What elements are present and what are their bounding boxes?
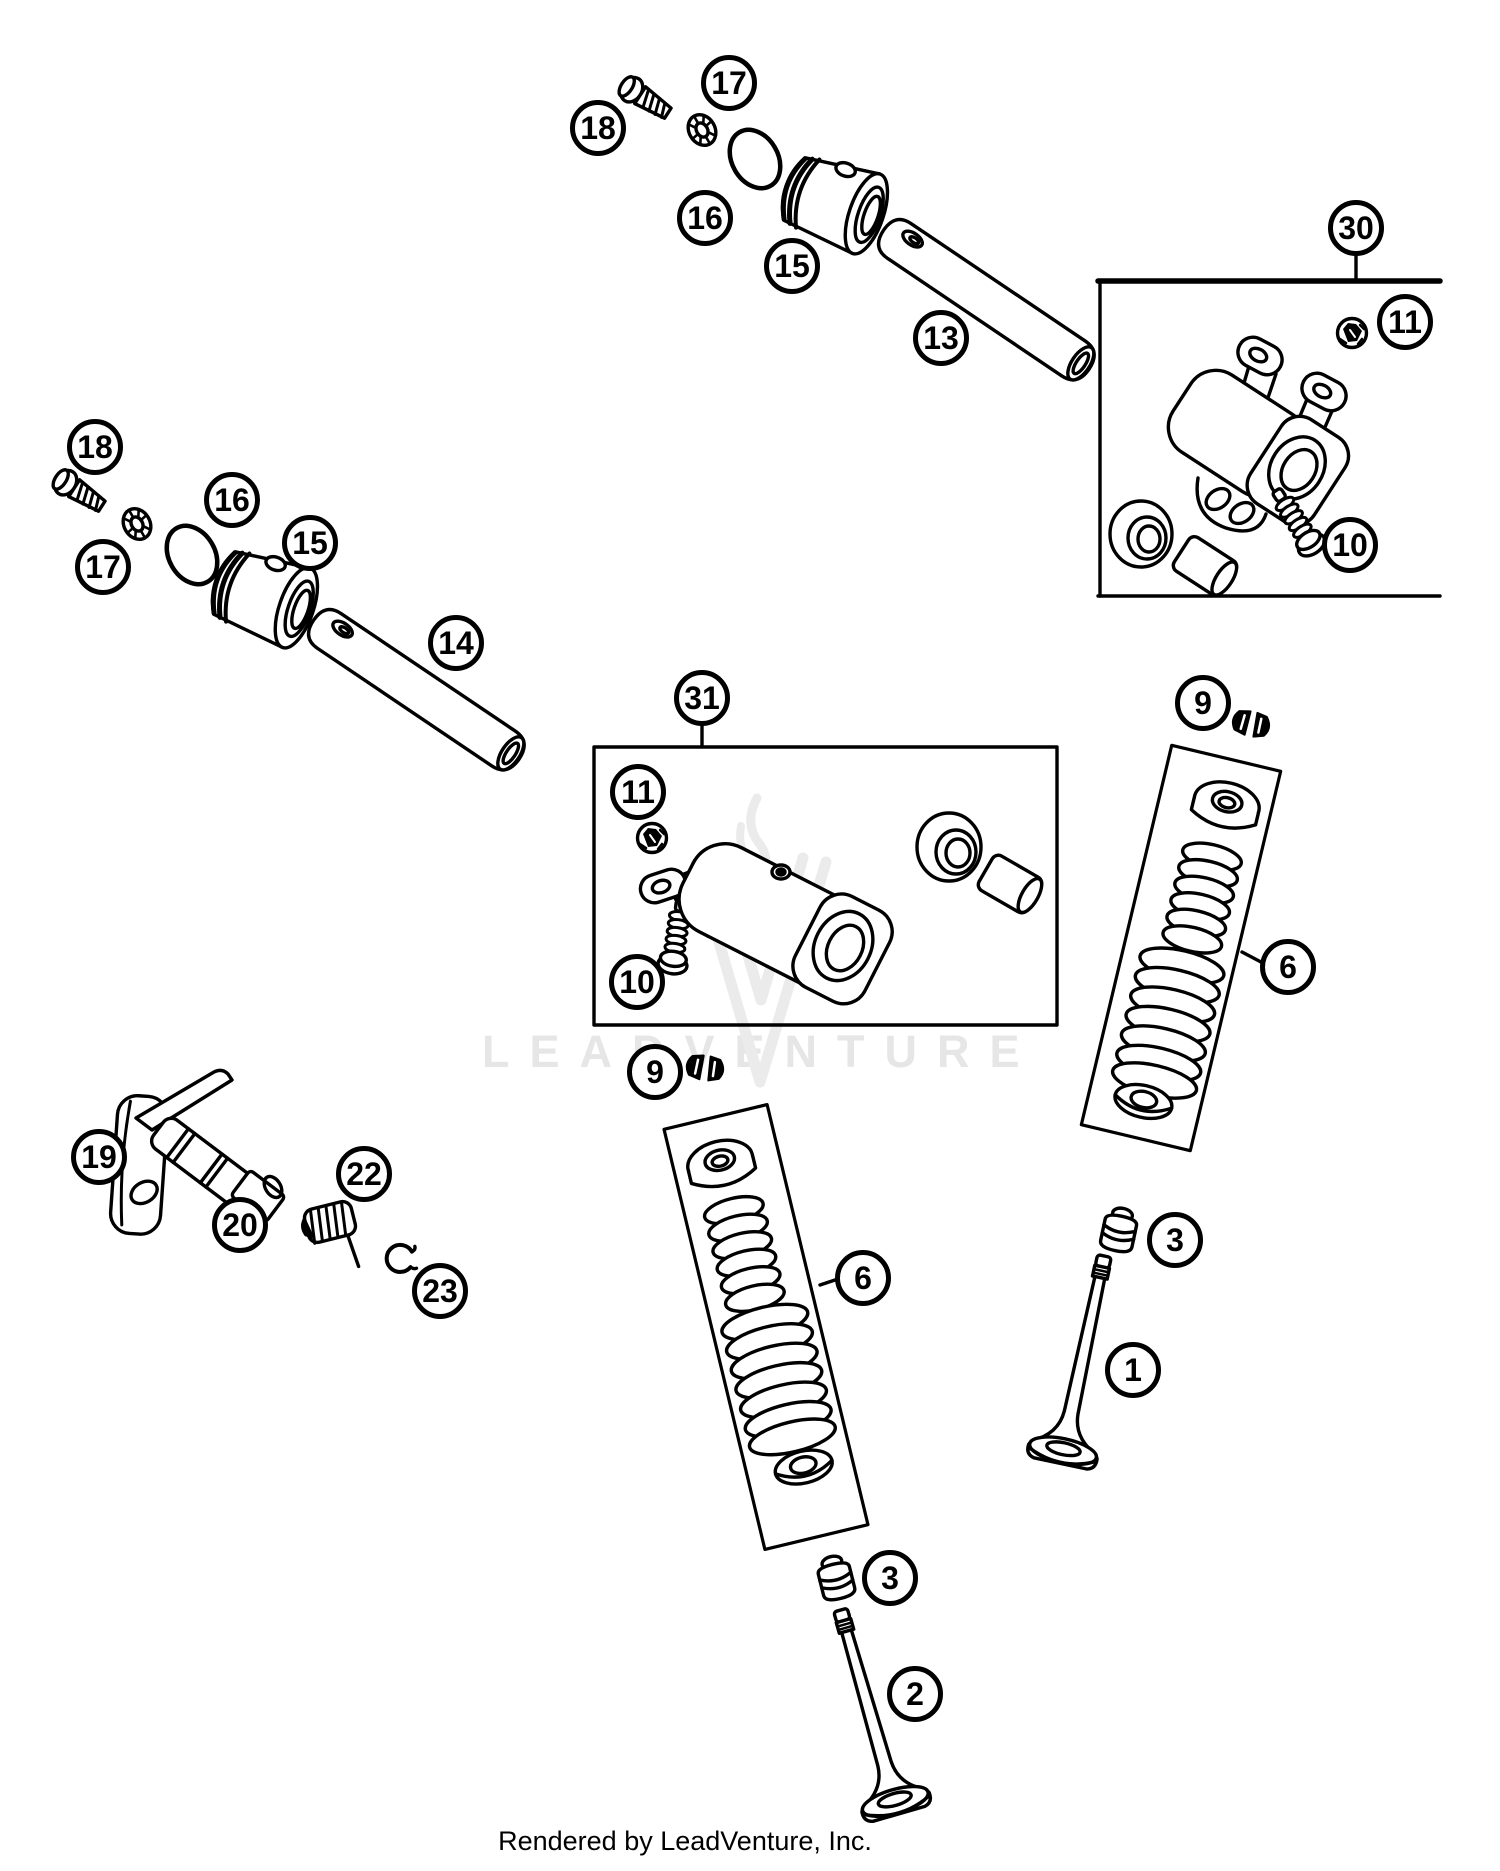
callout-label: 6 xyxy=(854,1262,872,1294)
callout-label: 22 xyxy=(346,1158,382,1190)
footer-credit: Rendered by LeadVenture, Inc. xyxy=(420,1826,950,1857)
callout-label: 2 xyxy=(906,1678,924,1710)
callout-label: 17 xyxy=(85,551,121,583)
callout-20: 20 xyxy=(212,1197,268,1253)
callout-22: 22 xyxy=(336,1146,392,1202)
callout-label: 23 xyxy=(422,1275,458,1307)
callout-label: 18 xyxy=(580,112,616,144)
callout-label: 3 xyxy=(881,1562,899,1594)
callout-label: 19 xyxy=(81,1141,117,1173)
callout-label: 11 xyxy=(621,776,655,808)
callout-6-middle: 6 xyxy=(835,1250,891,1306)
callout-9-right: 9 xyxy=(1175,675,1231,731)
rocker-arm-30 xyxy=(1157,332,1357,533)
callout-label: 14 xyxy=(438,627,474,659)
stem-seal-3-right xyxy=(1099,1205,1139,1254)
shaft-14 xyxy=(302,603,531,776)
valve-keepers-9-right xyxy=(1231,708,1272,739)
callout-label: 17 xyxy=(711,67,747,99)
callout-18-top: 18 xyxy=(570,100,626,156)
roller-washer-box31 xyxy=(917,813,981,881)
shaft-13 xyxy=(872,213,1101,386)
callout-6-right: 6 xyxy=(1260,939,1316,995)
callout-14: 14 xyxy=(428,615,484,671)
washer-17-top xyxy=(683,110,722,151)
callout-label: 9 xyxy=(1194,687,1212,719)
callout-label: 11 xyxy=(1388,306,1422,338)
valve-keepers-9-middle xyxy=(685,1053,725,1082)
exploded-parts-drawing xyxy=(0,0,1500,1871)
pin-bushing-box30 xyxy=(1171,534,1242,600)
nut-11-box30 xyxy=(1338,319,1367,348)
callout-10-box30: 10 xyxy=(1322,517,1378,573)
washer-17-left xyxy=(118,504,157,545)
callout-16-left: 16 xyxy=(204,472,260,528)
oring-16-top xyxy=(720,121,791,198)
torsion-spring-22 xyxy=(298,1200,365,1278)
nut-11-box31 xyxy=(638,824,667,853)
stem-seal-3-bottom xyxy=(815,1553,856,1602)
callout-23: 23 xyxy=(412,1263,468,1319)
callout-label: 20 xyxy=(222,1209,258,1241)
callout-label: 10 xyxy=(619,966,655,998)
callout-11-box30: 11 xyxy=(1377,294,1433,350)
roller-washer-box30 xyxy=(1110,501,1172,567)
callout-16-top: 16 xyxy=(677,190,733,246)
callout-label: 3 xyxy=(1166,1224,1184,1256)
leader-line-6-right xyxy=(1242,952,1261,962)
callout-label: 15 xyxy=(774,250,810,282)
callout-label: 10 xyxy=(1332,529,1368,561)
inner-valve-spring-middle xyxy=(702,1192,787,1317)
callout-9-middle: 9 xyxy=(627,1044,683,1100)
callout-17-top: 17 xyxy=(701,55,757,111)
valve-spring-assembly-middle xyxy=(664,1105,868,1550)
callout-10-box31: 10 xyxy=(609,954,665,1010)
callout-label: 18 xyxy=(77,431,113,463)
callout-30: 30 xyxy=(1328,200,1384,256)
snap-ring-23 xyxy=(383,1238,423,1277)
callout-label: 1 xyxy=(1124,1354,1142,1386)
outer-valve-spring-right xyxy=(1109,941,1227,1105)
callout-1: 1 xyxy=(1105,1342,1161,1398)
callout-label: 31 xyxy=(684,682,720,714)
callout-13: 13 xyxy=(913,310,969,366)
callout-label: 30 xyxy=(1338,212,1374,244)
callout-label: 16 xyxy=(687,202,723,234)
callout-19: 19 xyxy=(71,1129,127,1185)
parts-diagram-page: LEADVENTURE xyxy=(0,0,1500,1871)
callout-label: 15 xyxy=(292,527,328,559)
callout-15-left: 15 xyxy=(282,515,338,571)
inner-valve-spring-right xyxy=(1160,838,1244,958)
callout-15-top: 15 xyxy=(764,238,820,294)
callout-31: 31 xyxy=(674,670,730,726)
valve-spring-assembly-right xyxy=(1081,745,1280,1150)
callout-label: 16 xyxy=(214,484,250,516)
pin-bushing-box31 xyxy=(976,853,1047,917)
screw-18-top xyxy=(615,73,675,124)
callout-3-right: 3 xyxy=(1147,1212,1203,1268)
callout-17-left: 17 xyxy=(75,539,131,595)
callout-18-left: 18 xyxy=(67,419,123,475)
callout-label: 13 xyxy=(923,322,959,354)
callout-label: 9 xyxy=(646,1056,664,1088)
callout-label: 6 xyxy=(1279,951,1297,983)
callout-2: 2 xyxy=(887,1666,943,1722)
callout-3-bottom: 3 xyxy=(862,1550,918,1606)
callout-11-box31: 11 xyxy=(610,764,666,820)
